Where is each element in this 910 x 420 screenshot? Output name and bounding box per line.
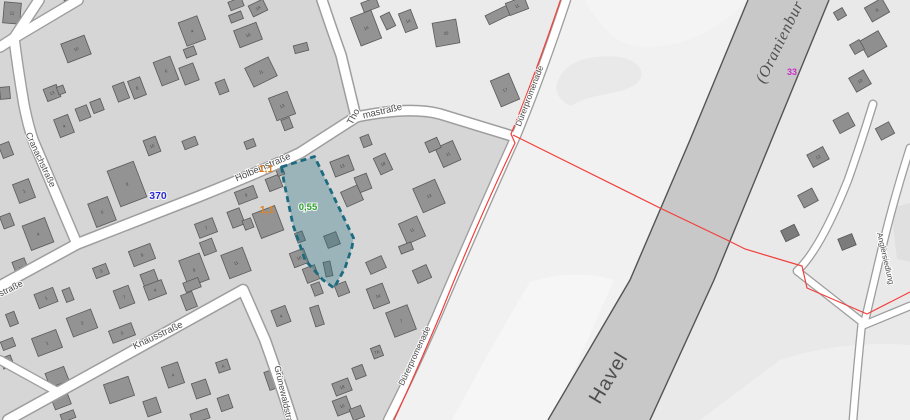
svg-text:1,1: 1,1 (260, 204, 275, 216)
svg-text:33: 33 (787, 67, 797, 77)
svg-text:370: 370 (149, 190, 167, 202)
svg-text:1,1: 1,1 (259, 163, 274, 175)
svg-text:0,55: 0,55 (299, 202, 318, 213)
